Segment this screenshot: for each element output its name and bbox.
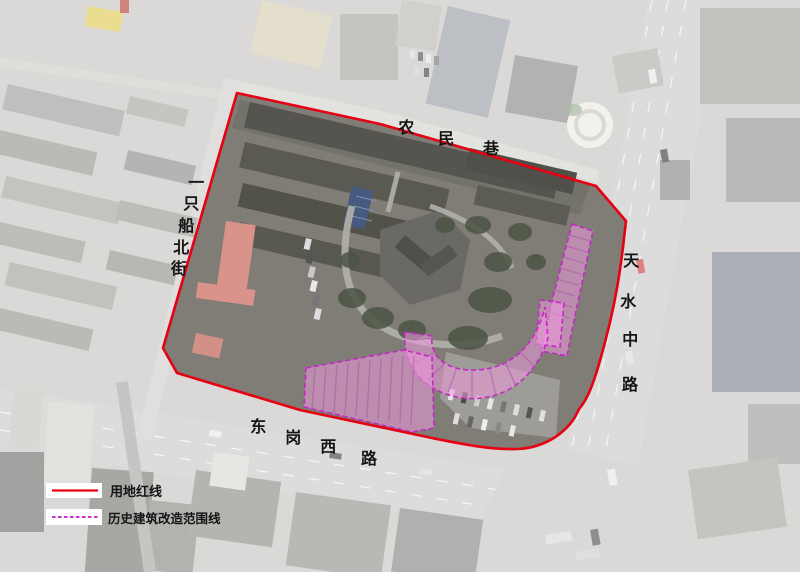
satellite-plan-map: 农 民 巷 一 只 船 北 街 天 水 中 路 东 岗 西 路 用地红线 xyxy=(0,0,800,572)
legend-label: 用地红线 xyxy=(109,484,162,500)
legend-label: 历史建筑改造范围线 xyxy=(108,511,221,526)
legend-item-dashed: 历史建筑改造范围线 xyxy=(46,509,221,526)
plan-map-screenshot: 农 民 巷 一 只 船 北 街 天 水 中 路 东 岗 西 路 用地红线 xyxy=(0,0,800,572)
